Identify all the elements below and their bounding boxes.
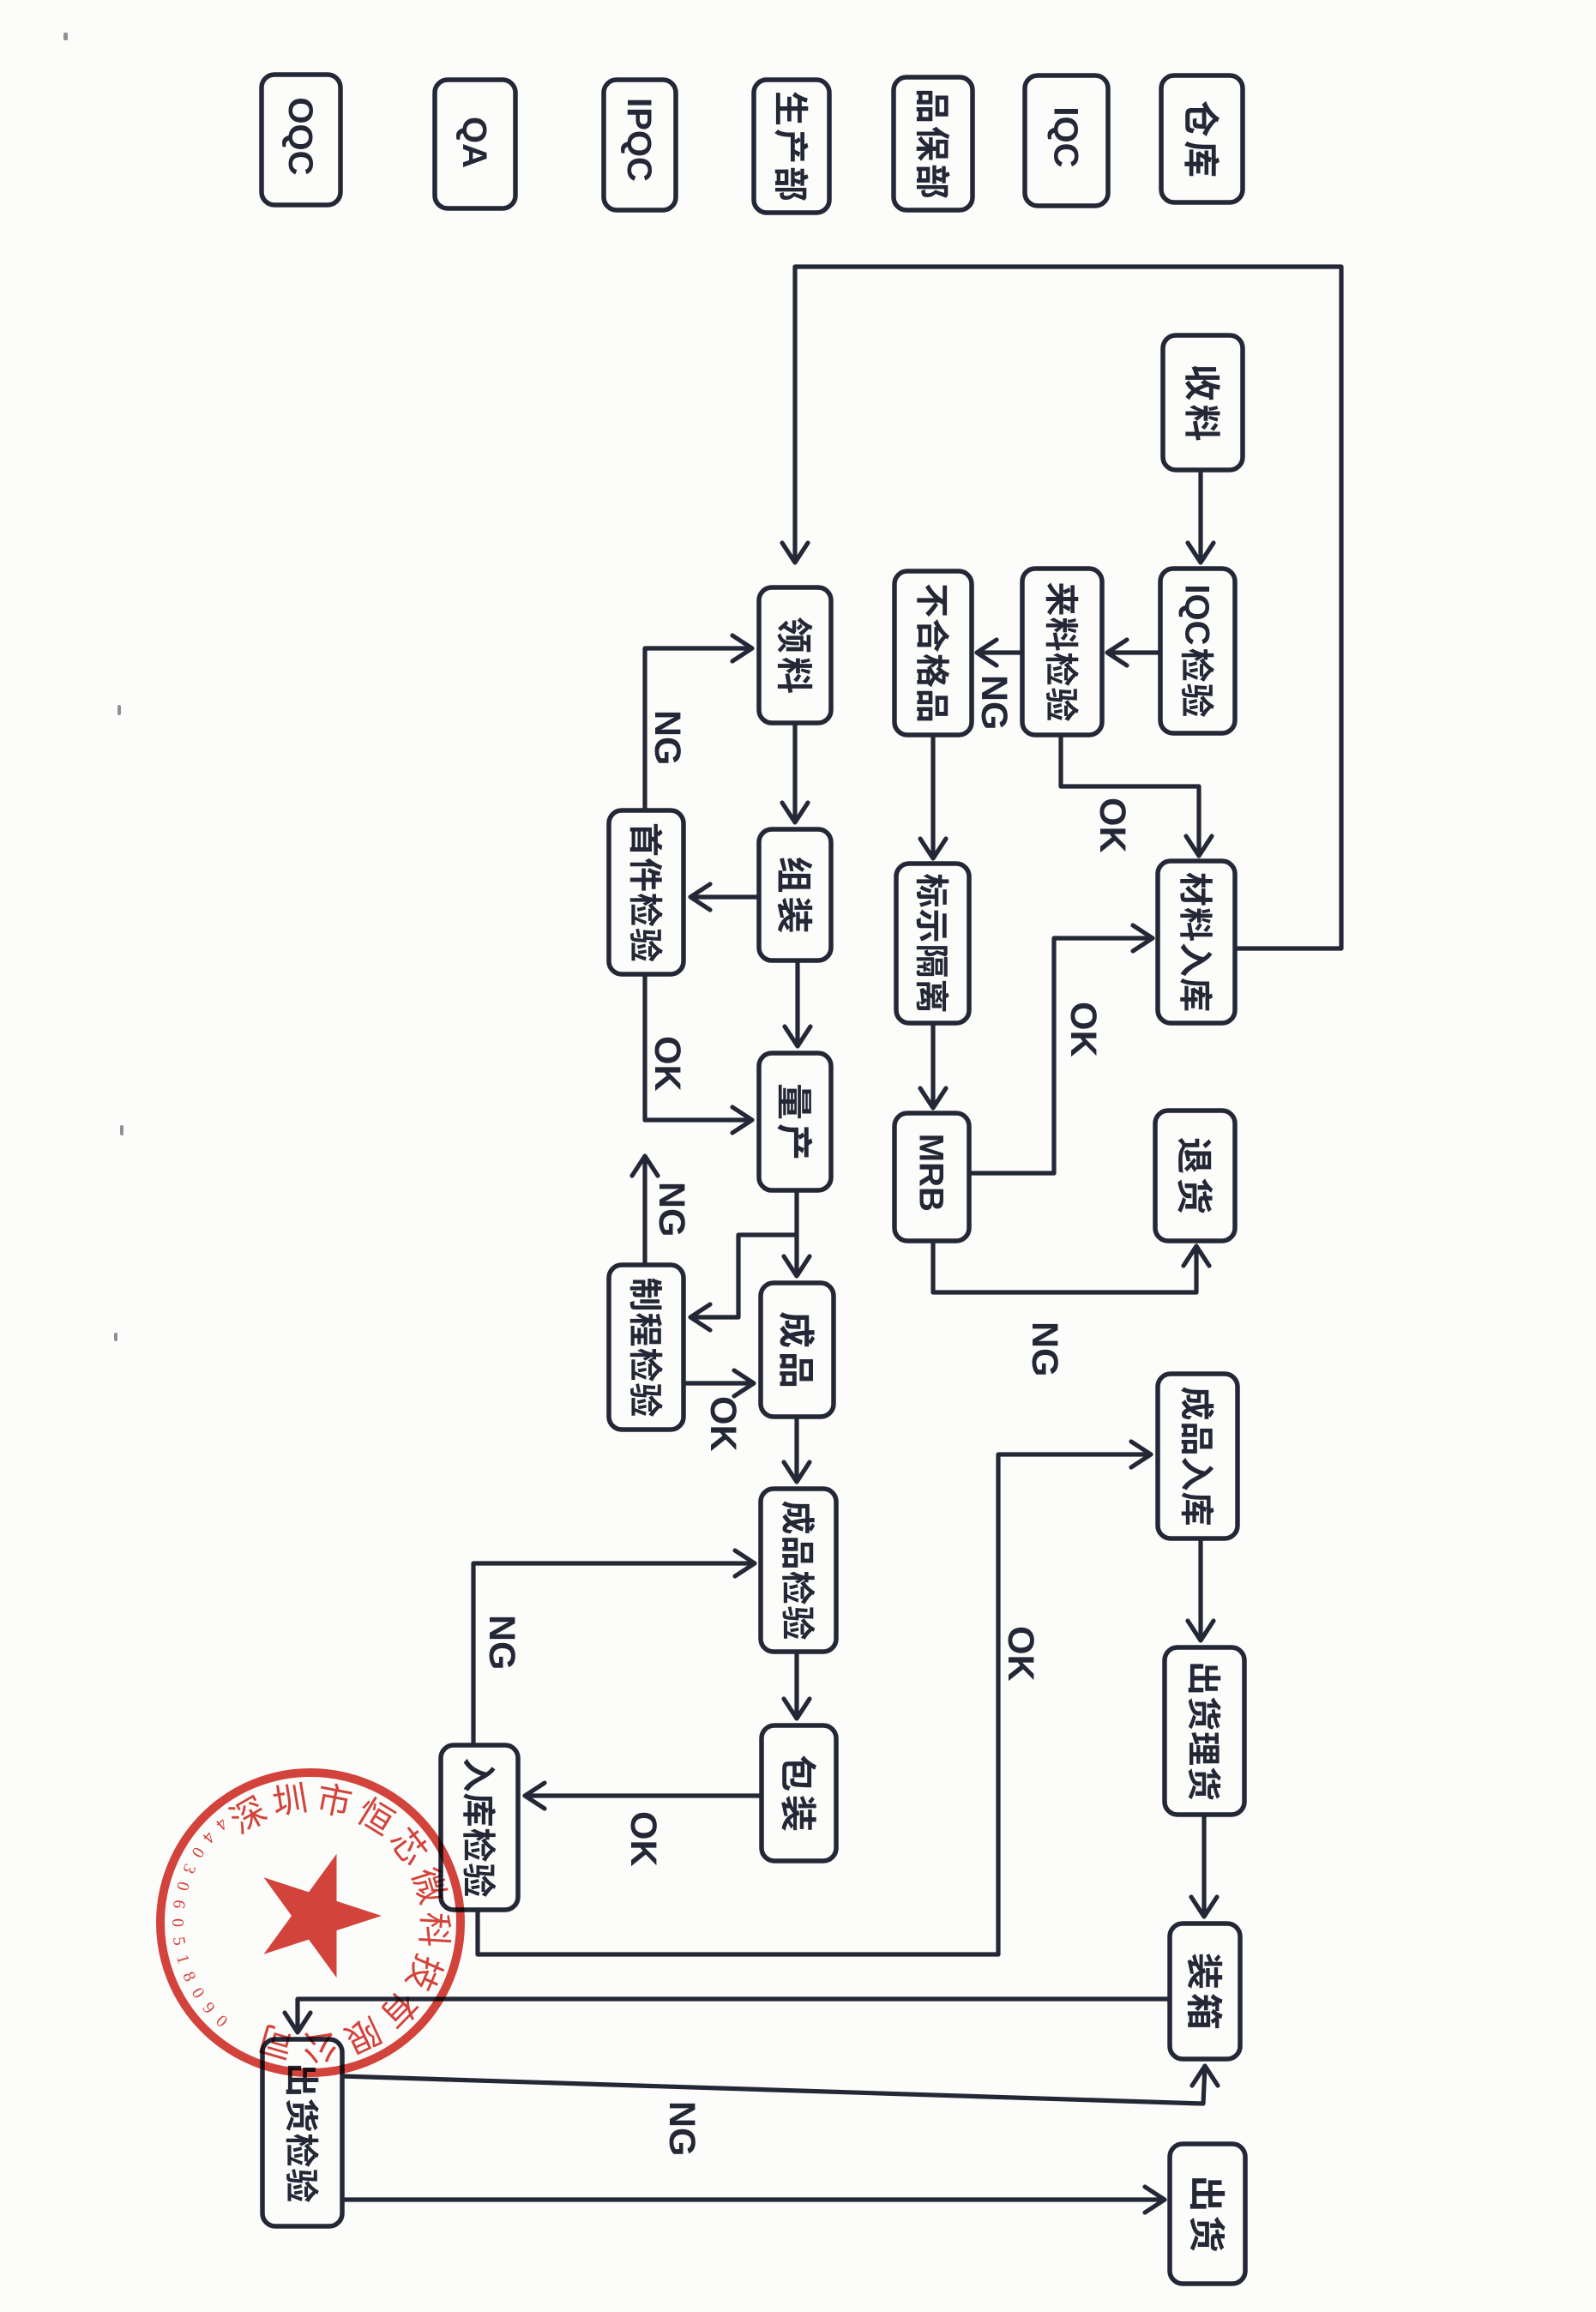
svg-text:OQC: OQC — [281, 97, 319, 175]
svg-text:OK: OK — [647, 1036, 688, 1092]
svg-text:IQC: IQC — [1177, 584, 1215, 645]
svg-text:MRB: MRB — [912, 1134, 949, 1212]
svg-text:IPQC: IPQC — [620, 98, 658, 182]
svg-text:OK: OK — [702, 1396, 744, 1452]
svg-text:IQC: IQC — [1046, 106, 1084, 167]
svg-text:OK: OK — [1000, 1626, 1041, 1682]
svg-text:NG: NG — [1024, 1322, 1065, 1377]
svg-text:0: 0 — [168, 1918, 187, 1927]
svg-text:NG: NG — [973, 675, 1015, 731]
svg-text:OK: OK — [1063, 1002, 1104, 1057]
svg-text:NG: NG — [481, 1615, 522, 1671]
svg-text:NG: NG — [647, 710, 688, 766]
svg-text:OK: OK — [1092, 798, 1133, 853]
svg-text:NG: NG — [651, 1182, 692, 1237]
svg-text:NG: NG — [661, 2101, 702, 2157]
svg-text:QA: QA — [455, 117, 493, 168]
svg-text:OK: OK — [623, 1811, 664, 1867]
